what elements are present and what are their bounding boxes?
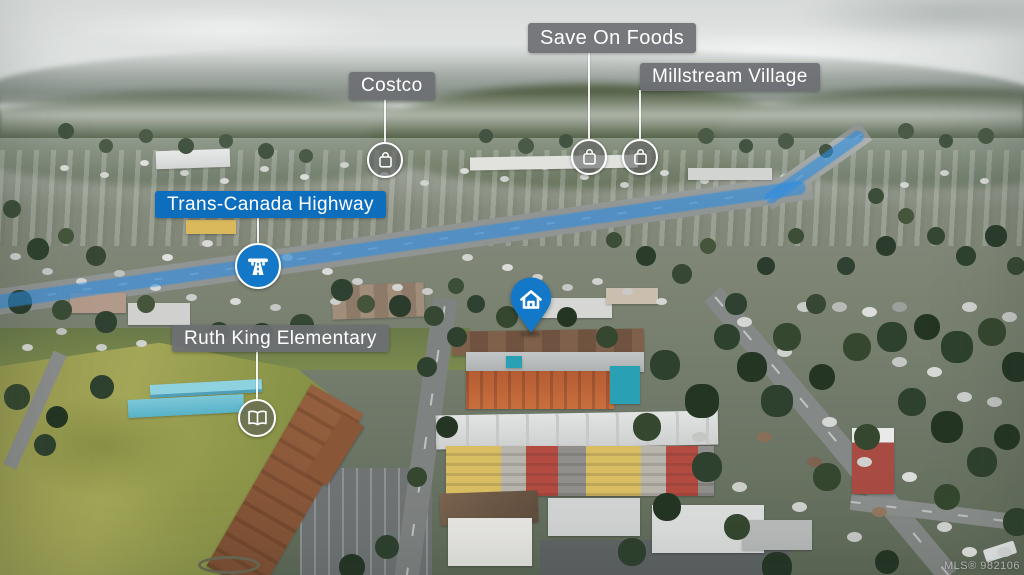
- shopping-bag-icon: [367, 142, 403, 178]
- leader-line: [257, 217, 259, 244]
- open-book-icon: [238, 399, 276, 437]
- scene-cloud: [800, 0, 1024, 42]
- poi-label-costco: Costco: [349, 72, 435, 100]
- leader-line: [639, 90, 641, 140]
- scene-townhouses: [331, 282, 424, 319]
- scene-cloud: [60, 4, 400, 48]
- scene-fog: [0, 92, 1024, 138]
- home-pin-icon: [509, 276, 553, 334]
- scene-building: [852, 428, 894, 494]
- scene-apartment-walls: [446, 446, 714, 496]
- mls-watermark: MLS® 982106: [944, 560, 1020, 572]
- poi-label-ruth-king-elementary: Ruth King Elementary: [172, 325, 389, 352]
- scene-building: [128, 303, 190, 325]
- scene-warehouse: [548, 498, 640, 536]
- scene-road: [850, 494, 1024, 532]
- highway-icon: [235, 243, 281, 289]
- scene-apartment-orange: [466, 371, 614, 409]
- scene-trees: [0, 0, 10, 10]
- scene-apartment-roofs: [436, 411, 719, 450]
- scene-carport: [742, 520, 812, 550]
- poi-label-save-on-foods: Save On Foods: [528, 23, 696, 53]
- scene-building: [606, 288, 658, 304]
- scene-building: [186, 220, 236, 234]
- scene-rooftop-box: [506, 356, 522, 368]
- poi-label-millstream-village: Millstream Village: [640, 63, 820, 91]
- annotated-aerial-photo: Save On Foods Costco Millstream Village …: [0, 0, 1024, 575]
- leader-line: [256, 350, 258, 401]
- leader-line: [588, 52, 590, 140]
- scene-house: [448, 518, 532, 566]
- scene-dirt-ring: [198, 556, 260, 574]
- shopping-bag-icon: [622, 139, 658, 175]
- leader-line: [384, 99, 386, 144]
- scene-apartment-teal-end: [610, 366, 640, 404]
- scene-haze: [0, 138, 1024, 210]
- shopping-bag-icon: [571, 139, 607, 175]
- poi-label-trans-canada-highway: Trans-Canada Highway: [155, 191, 386, 218]
